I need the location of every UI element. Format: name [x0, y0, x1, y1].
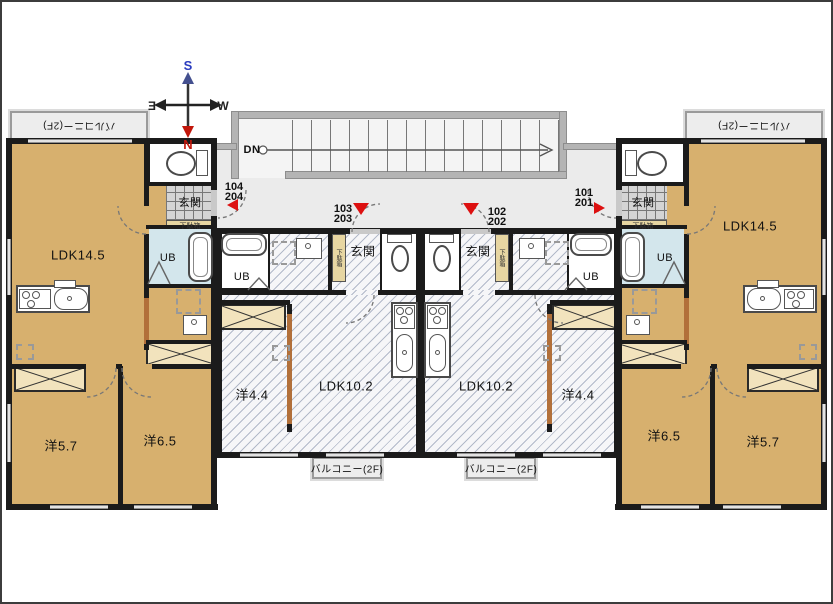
- burner-icon: [797, 291, 805, 299]
- compass-south-label: S: [184, 58, 193, 73]
- counter-shelf: [757, 280, 779, 288]
- shoe-cabinet-label: 下駄箱: [180, 221, 201, 231]
- closet: [146, 342, 216, 366]
- washbasin-icon: [626, 315, 650, 335]
- window: [543, 453, 601, 457]
- washbasin-icon: [183, 315, 207, 335]
- shoe-cabinet: 下駄箱: [495, 234, 509, 282]
- unit-number-101-201: 101 201: [575, 188, 593, 208]
- shoe-cabinet-label: 下駄箱: [333, 235, 345, 281]
- washer-space: [545, 241, 569, 265]
- entrance-label: 玄関: [632, 194, 655, 210]
- entry-marker-icon: [227, 199, 238, 211]
- corridor-wall: [214, 144, 236, 149]
- burner-icon: [27, 300, 35, 308]
- compass-east-label: E: [148, 99, 156, 113]
- unit-bath-label: UB: [657, 252, 673, 264]
- entrance-label: 玄関: [179, 194, 202, 210]
- toilet-bowl-icon: [637, 151, 667, 176]
- toilet-bowl-icon: [391, 245, 409, 272]
- window: [7, 404, 11, 462]
- room-label-bedroom: 洋4.4: [235, 385, 268, 404]
- washbasin-faucet-icon: [305, 243, 311, 249]
- wall-segment: [287, 304, 292, 314]
- door-opening: [346, 290, 378, 295]
- stair-wall: [286, 172, 566, 178]
- unit-number-102-202: 102 202: [488, 207, 506, 227]
- entry-marker-icon: [463, 203, 479, 215]
- stair-treads: [292, 120, 560, 172]
- burner-icon: [22, 291, 30, 299]
- room-label-ldk: LDK10.2: [459, 379, 513, 394]
- window: [701, 139, 805, 143]
- door-opening: [684, 206, 689, 234]
- bathtub-inner: [226, 238, 262, 251]
- burner-icon: [787, 291, 795, 299]
- unit-number-line: 201: [575, 198, 593, 208]
- window: [822, 239, 826, 295]
- closet: [747, 366, 819, 392]
- shoe-cabinet-label: 下駄箱: [633, 221, 654, 231]
- compass-west-label: W: [217, 99, 229, 113]
- entrance-label: 玄関: [350, 243, 375, 260]
- sink-drain-icon: [760, 296, 765, 301]
- door-sill: [350, 229, 380, 234]
- bathtub-icon: [221, 233, 267, 256]
- stairs-down-label: DN: [244, 144, 261, 156]
- door-sill: [461, 229, 491, 234]
- balcony-label: バルコニー(2F): [465, 461, 538, 476]
- wall-segment: [421, 290, 620, 295]
- entry-marker-icon: [594, 202, 605, 214]
- toilet-bowl-icon: [433, 245, 451, 272]
- closet-x-icon: [148, 344, 214, 364]
- toilet-tank-icon: [429, 234, 454, 243]
- toilet-tank-icon: [387, 234, 412, 243]
- wall-segment: [547, 304, 552, 314]
- refrigerator-space: [16, 344, 34, 360]
- wall-segment: [710, 366, 715, 510]
- window: [134, 505, 192, 509]
- closet: [14, 366, 86, 392]
- wall-segment: [146, 340, 216, 344]
- room-label-bedroom: 洋4.4: [561, 385, 594, 404]
- wall-segment: [328, 230, 332, 292]
- door-sill: [211, 190, 217, 216]
- washbasin-faucet-icon: [634, 319, 640, 325]
- wall-segment: [216, 290, 421, 295]
- wall-segment: [118, 366, 123, 510]
- door-opening: [717, 364, 747, 369]
- wall-segment: [148, 182, 214, 186]
- bathtub-inner: [575, 238, 607, 251]
- bathtub-inner: [625, 237, 640, 277]
- wall-segment: [617, 284, 687, 288]
- compass-north-arrow: [182, 126, 194, 138]
- unit-bath-label: UB: [160, 252, 176, 264]
- closet-x-icon: [619, 344, 685, 364]
- burner-icon: [396, 307, 404, 315]
- window: [457, 453, 515, 457]
- room-label-bedroom: 洋5.7: [746, 432, 779, 451]
- compass-west-arrow: [210, 99, 222, 111]
- window: [326, 453, 384, 457]
- room-label-bedroom: 洋6.5: [143, 431, 176, 450]
- stair-wall: [232, 112, 566, 118]
- bathtub-inner: [193, 237, 208, 277]
- burner-icon: [32, 291, 40, 299]
- entry-marker-icon: [353, 203, 369, 215]
- sink-drain-icon: [435, 350, 440, 355]
- wood-wall: [287, 314, 292, 424]
- burner-icon: [438, 307, 446, 315]
- burner-icon: [429, 307, 437, 315]
- wood-wall: [144, 298, 149, 344]
- wall-segment: [547, 424, 552, 432]
- window: [28, 139, 132, 143]
- door-sill: [616, 190, 622, 216]
- washer-space: [272, 241, 296, 265]
- room-label-ldk: LDK14.5: [51, 248, 105, 263]
- closet-x-icon: [554, 306, 616, 328]
- door-opening: [86, 364, 116, 369]
- closet-x-icon: [16, 368, 84, 390]
- door-opening: [463, 290, 495, 295]
- corridor-wall: [564, 144, 618, 149]
- wall-segment: [287, 424, 292, 432]
- washbasin-faucet-icon: [191, 319, 197, 325]
- window: [240, 453, 298, 457]
- closet-x-icon: [749, 368, 817, 390]
- unit-number-line: 202: [488, 217, 506, 227]
- burner-icon: [792, 300, 800, 308]
- door-opening: [681, 364, 711, 369]
- compass: S N E W: [146, 58, 230, 150]
- closet: [617, 342, 687, 366]
- shoe-cabinet-label: 下駄箱: [496, 235, 508, 281]
- bathtub-icon: [620, 232, 645, 282]
- washer-space: [176, 289, 201, 314]
- sink-drain-icon: [67, 296, 72, 301]
- window: [822, 404, 826, 462]
- toilet-tank-icon: [625, 150, 637, 176]
- balcony-label: バルコニー(2F): [311, 461, 384, 476]
- door-opening: [144, 206, 149, 234]
- unit-bath-label: UB: [234, 271, 250, 283]
- refrigerator-space: [272, 345, 290, 361]
- entrance-label: 玄関: [465, 243, 490, 260]
- washbasin-faucet-icon: [528, 243, 534, 249]
- wall-segment: [509, 230, 513, 292]
- shoe-cabinet: 下駄箱: [332, 234, 346, 282]
- room-label-ldk: LDK14.5: [723, 219, 777, 234]
- wood-wall: [684, 298, 689, 344]
- room-label-bedroom: 洋5.7: [44, 436, 77, 455]
- refrigerator-space: [543, 345, 561, 361]
- room-label-ldk: LDK10.2: [319, 379, 373, 394]
- closet: [220, 304, 286, 330]
- closet-x-icon: [222, 306, 284, 328]
- door-opening: [122, 364, 152, 369]
- wall-segment: [216, 228, 222, 458]
- window: [641, 505, 699, 509]
- balcony-label: バルコニー(2F): [718, 120, 791, 135]
- floor-plan-canvas: 下駄箱 下駄箱: [0, 0, 833, 604]
- bathtub-icon: [188, 232, 213, 282]
- compass-east-arrow: [154, 99, 166, 111]
- closet: [552, 304, 618, 330]
- wall-segment: [619, 182, 685, 186]
- bathtub-icon: [570, 233, 612, 256]
- unit-bath-label: UB: [583, 271, 599, 283]
- wood-wall: [547, 314, 552, 424]
- wall-segment: [146, 284, 216, 288]
- toilet-bowl-icon: [166, 151, 196, 176]
- toilet-tank-icon: [196, 150, 208, 176]
- sink-drain-icon: [402, 350, 407, 355]
- wall-segment: [617, 340, 687, 344]
- compass-south-arrow: [182, 72, 194, 84]
- refrigerator-space: [799, 344, 817, 360]
- unit-number-line: 203: [334, 214, 352, 224]
- room-label-bedroom: 洋6.5: [647, 426, 680, 445]
- balcony-label: バルコニー(2F): [43, 120, 116, 135]
- burner-icon: [433, 316, 441, 324]
- wall-segment: [550, 300, 620, 305]
- window: [7, 239, 11, 295]
- wall-segment: [216, 300, 290, 305]
- unit-number-103-203: 103 203: [334, 204, 352, 224]
- burner-icon: [400, 316, 408, 324]
- counter-shelf: [54, 280, 76, 288]
- washer-space: [632, 289, 657, 314]
- window: [723, 505, 781, 509]
- burner-icon: [405, 307, 413, 315]
- window: [50, 505, 108, 509]
